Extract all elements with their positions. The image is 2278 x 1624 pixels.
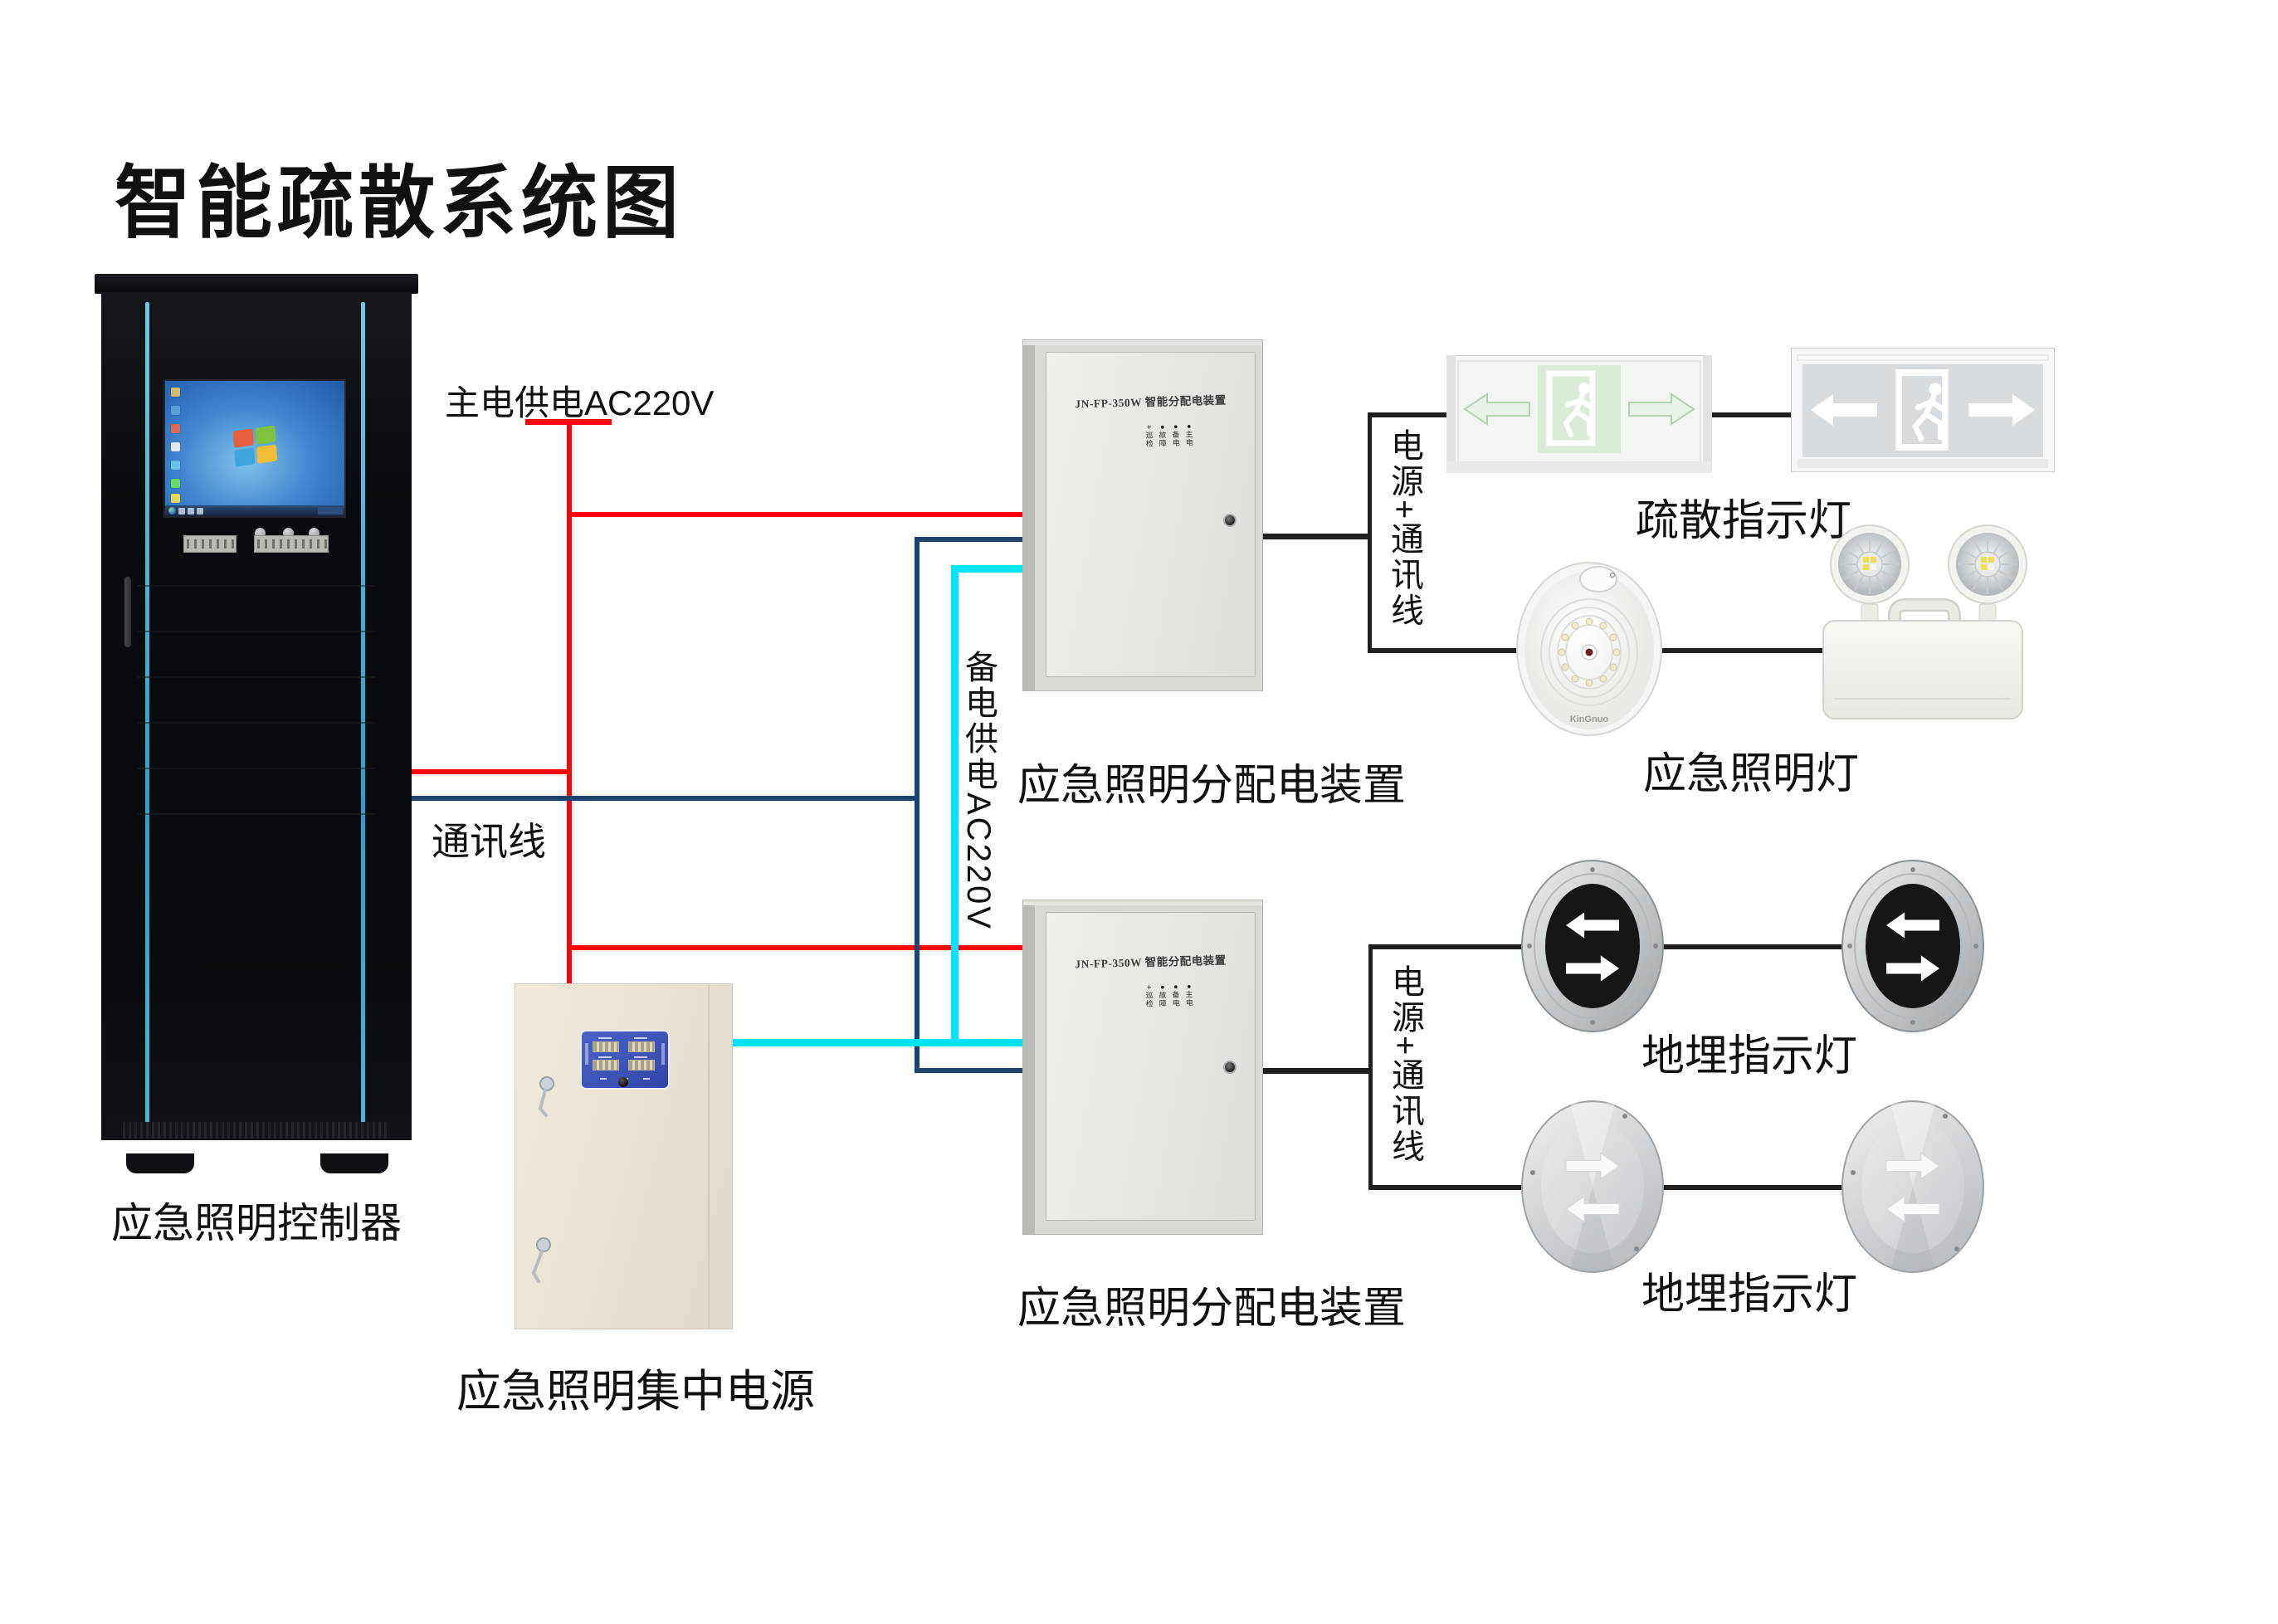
windows-logo-pane-yellow [256, 444, 277, 463]
page-title: 智能疏散系统图 [115, 139, 684, 253]
exit-sign-1 [1446, 355, 1712, 473]
comm-wire-from-rack [408, 796, 916, 801]
spotlight-head [1949, 525, 2027, 603]
windows-taskbar [165, 505, 344, 516]
rack-foot [320, 1153, 388, 1173]
taskbar-icon [188, 508, 194, 515]
comm-wire-bottom-arm [919, 1068, 1031, 1073]
ground-indicator-light-black [1841, 859, 1985, 1033]
psu-display [593, 1041, 619, 1052]
windows-logo-pane-blue [234, 447, 255, 466]
box2-to-bracket-connector [1258, 1068, 1371, 1074]
psu-panel-mark [600, 1078, 607, 1080]
desktop-icon [171, 406, 180, 415]
round-light-brand: KinGnuo [1570, 714, 1609, 724]
desktop-icon [171, 494, 180, 503]
windows-logo-pane-red [233, 428, 254, 447]
psu-key-icon [527, 1074, 565, 1120]
comm-wire-top-arm [919, 537, 1029, 542]
main-power-branch-box2 [572, 945, 1029, 950]
psu-display [593, 1060, 619, 1070]
indicator-beidian: ●备电 [1171, 983, 1182, 1007]
rack-shelf-line [138, 585, 375, 587]
distribution-box-door-title: JN-FP-350W 智能分配电装置 [1046, 390, 1255, 412]
rack-shelf-line [138, 631, 375, 632]
distribution-box-1-door: JN-FP-350W 智能分配电装置 +巡检 ●故障 ●备电 ●主电 [1046, 352, 1256, 677]
rack-accent-strip-right [361, 302, 365, 1139]
label-controller: 应急照明控制器 [111, 1190, 402, 1250]
psu-panel-mark [598, 1037, 612, 1039]
psu-door-seam [708, 984, 710, 1329]
desktop-icon [171, 424, 180, 433]
rack-shelf-line [138, 813, 375, 815]
psu-panel-mark [634, 1037, 647, 1039]
distribution-box-door-title: JN-FP-350W 智能分配电装置 [1046, 950, 1255, 973]
rack-vent-grille [123, 1122, 390, 1139]
distribution-box-1: JN-FP-350W 智能分配电装置 +巡检 ●故障 ●备电 ●主电 [1022, 339, 1263, 691]
rack-accent-strip-left [145, 302, 149, 1139]
ground-indicator-light-steel [1520, 1100, 1665, 1274]
psu-display [628, 1041, 655, 1052]
door-lock [1225, 515, 1235, 525]
windows-logo-pane-green [255, 425, 276, 444]
start-orb-icon [168, 507, 176, 515]
indicator-leds: +巡检 ●故障 ●备电 ●主电 [1144, 982, 1195, 1008]
indicator-leds: +巡检 ●故障 ●备电 ●主电 [1144, 422, 1195, 448]
exit-sign-2 [1791, 348, 2055, 472]
controller-screen [163, 379, 346, 518]
label-ground-light-1: 地埋指示灯 [1641, 1021, 1857, 1083]
round-emergency-light: KinGnuo [1515, 558, 1663, 737]
bracket2-vertical [1368, 944, 1373, 1190]
rack-shelf-line [138, 722, 375, 724]
psu-display [628, 1060, 655, 1070]
desktop-icon [171, 442, 180, 451]
evacuation-system-diagram: 智能疏散系统图 [0, 0, 2278, 1624]
distribution-box-2: JN-FP-350W 智能分配电装置 +巡检 ●故障 ●备电 ●主电 [1022, 900, 1263, 1235]
psu-panel-mark [661, 1043, 665, 1065]
psu-key-icon [522, 1235, 560, 1285]
door-lock [1225, 1062, 1235, 1072]
label-distribution-box-2: 应急照明分配电装置 [1017, 1273, 1406, 1335]
indicator-guzhang: ●故障 [1158, 422, 1168, 447]
windows-logo [232, 426, 278, 467]
controller-rack-top-cap [95, 274, 418, 294]
round-light-button [1580, 567, 1617, 592]
indicator-zhudian: ●主电 [1184, 982, 1195, 1007]
bracket1-vertical [1368, 412, 1372, 653]
main-power-branch-box1 [572, 512, 1029, 517]
label-power-comm-1: 电源+通讯线 [1380, 428, 1428, 636]
label-psu: 应急照明集中电源 [456, 1354, 815, 1420]
rack-io-panel [254, 535, 329, 553]
controller-rack [101, 292, 412, 1140]
psu-knob [618, 1077, 628, 1087]
label-power-comm-2: 电源+通讯线 [1381, 964, 1429, 1172]
label-emergency-light: 应急照明灯 [1643, 739, 1859, 801]
label-comm-line: 通讯线 [432, 812, 546, 866]
indicator-beidian: ●备电 [1171, 422, 1182, 447]
taskbar-icon [178, 508, 185, 515]
psu-panel-mark [598, 1056, 612, 1058]
desktop-icon [171, 388, 180, 397]
backup-power-from-psu [729, 1039, 1031, 1046]
rack-switch-panel [183, 535, 237, 553]
indicator-xunjian: +巡检 [1144, 422, 1155, 447]
psu-panel-mark [634, 1056, 647, 1058]
central-power-supply-box [515, 983, 733, 1329]
rack-door-handle [124, 577, 131, 647]
twin-head-emergency-light [1822, 521, 2029, 724]
indicator-zhudian: ●主电 [1184, 422, 1195, 446]
label-backup-power: 备电供电AC220V [954, 650, 1002, 936]
box1-to-bracket-connector [1258, 534, 1369, 539]
taskbar-icon [197, 508, 203, 515]
distribution-box-2-door: JN-FP-350W 智能分配电装置 +巡检 ●故障 ●备电 ●主电 [1046, 912, 1256, 1221]
backup-power-top-arm [959, 565, 1029, 573]
ground-indicator-light-black [1520, 859, 1665, 1033]
rack-foot [126, 1153, 194, 1173]
system-tray [318, 507, 343, 515]
label-ground-light-2: 地埋指示灯 [1641, 1259, 1857, 1321]
label-distribution-box-1: 应急照明分配电装置 [1017, 750, 1406, 812]
main-power-vertical-wire [567, 422, 572, 985]
label-exit-sign: 疏散指示灯 [1636, 485, 1851, 548]
rack-shelf-line [138, 768, 375, 769]
desktop-icon [171, 461, 180, 470]
psu-panel-mark [585, 1043, 588, 1065]
desktop-icon [171, 479, 180, 488]
rack-shelf-line [138, 676, 375, 678]
comm-wire-vertical [915, 537, 919, 1073]
label-main-power: 主电供电AC220V [445, 375, 714, 426]
ground-indicator-light-steel [1841, 1100, 1985, 1274]
indicator-xunjian: +巡检 [1144, 983, 1155, 1007]
psu-panel-mark [643, 1078, 650, 1080]
main-power-rack-feed [408, 769, 568, 774]
indicator-guzhang: ●故障 [1158, 983, 1168, 1007]
